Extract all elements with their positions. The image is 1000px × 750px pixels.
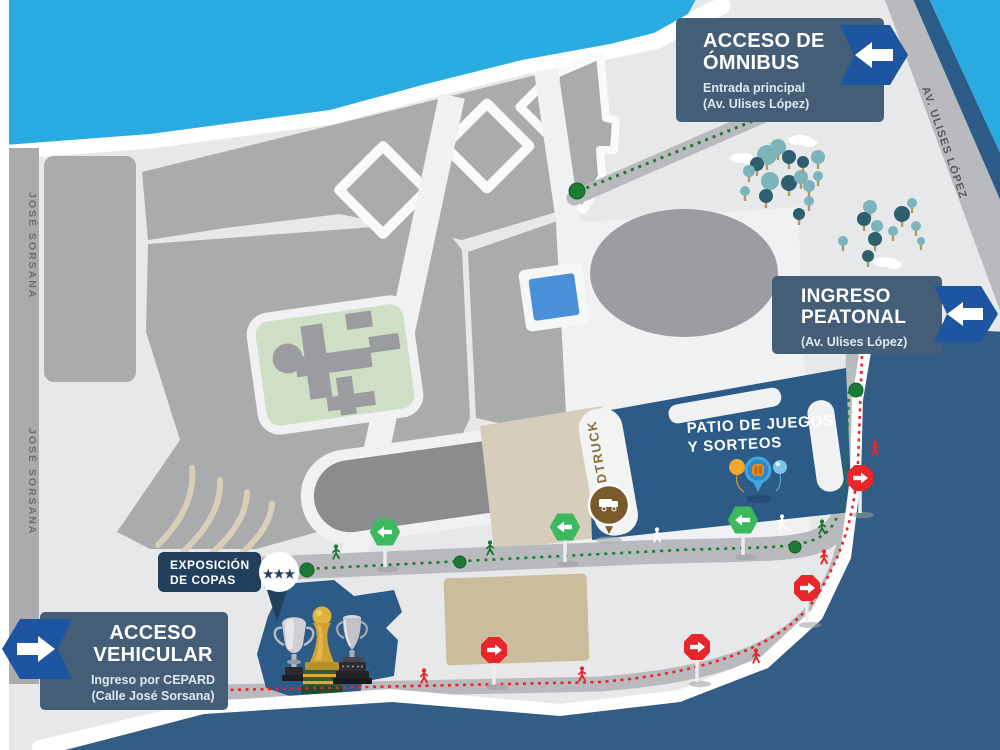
pool — [528, 273, 579, 321]
vehicular-access-title: ACCESO VEHICULAR — [84, 622, 222, 667]
tree-icon — [804, 196, 814, 206]
pedestrian-access-title: INGRESO PEATONAL — [801, 286, 934, 329]
tree-icon — [907, 198, 917, 208]
tree-icon — [803, 180, 815, 192]
tree-icon — [917, 237, 925, 245]
route-dot — [569, 183, 585, 199]
sign-shadow — [557, 561, 579, 567]
right-arrow-icon — [800, 586, 809, 590]
sign-shadow — [377, 566, 399, 572]
sign-shadow — [689, 681, 711, 687]
pedestrian-access-panel: INGRESO PEATONAL (Av. Ulises López) — [772, 276, 942, 354]
tree-icon — [862, 250, 874, 262]
bus-arrow-badge — [832, 24, 910, 86]
street-label-jose-sorsana: JOSÉ SORSANA — [26, 192, 39, 299]
tree-icon — [797, 156, 809, 168]
route-dot — [300, 563, 314, 577]
left-arrow-icon — [383, 530, 392, 534]
street-label-jose-sorsana: JOSÉ SORSANA — [26, 428, 39, 535]
route-dot — [789, 541, 801, 553]
venue-access-map: PATIO DE JUEGOS Y SORTEOS FOODTRUCK — [0, 0, 1000, 750]
right-arrow-icon — [853, 476, 862, 480]
playground-area — [249, 298, 421, 433]
tree-icon — [782, 150, 796, 164]
tree-icon — [813, 171, 823, 181]
tree-icon — [761, 172, 779, 190]
tree-icon — [793, 208, 805, 220]
tree-icon — [838, 236, 848, 246]
tree-icon — [863, 200, 877, 214]
right-arrow-icon — [487, 648, 496, 652]
sign-shadow — [486, 684, 508, 690]
route-dot — [849, 383, 863, 397]
three-stars-icon: ★★★ — [263, 567, 296, 581]
left-arrow-icon — [741, 518, 750, 522]
building-block-west — [44, 156, 136, 382]
cloud-icon — [886, 261, 902, 269]
tree-icon — [911, 221, 921, 231]
sign-shadow — [799, 622, 821, 628]
tree-icon — [894, 206, 910, 222]
tree-icon — [759, 189, 773, 203]
tree-icon — [868, 232, 882, 246]
tree-icon — [740, 186, 750, 196]
tree-icon — [811, 150, 825, 164]
stadium-oval — [590, 209, 778, 337]
tree-icon — [871, 220, 883, 232]
sign-shadow — [852, 512, 874, 518]
right-arrow-icon — [690, 645, 699, 649]
tree-icon — [888, 226, 898, 236]
pedestrian-arrow-badge — [926, 285, 1000, 343]
tree-icon — [743, 165, 755, 177]
route-dot — [454, 556, 466, 568]
vehicular-arrow-badge — [0, 618, 78, 680]
pedestrian-access-subtitle: (Av. Ulises López) — [801, 334, 934, 350]
sand-building — [444, 574, 590, 666]
trophy-exhibit-label-line2: DE COPAS — [170, 573, 236, 587]
vehicular-access-subtitle: Ingreso por CEPARD (Calle José Sorsana) — [84, 672, 222, 704]
trophy-exhibit-label-line1: EXPOSICIÓN — [170, 557, 250, 572]
pool-area — [518, 262, 590, 332]
sign-shadow — [735, 554, 757, 560]
tree-icon — [857, 212, 871, 226]
cloud-icon — [801, 139, 817, 147]
left-arrow-icon — [563, 525, 572, 529]
